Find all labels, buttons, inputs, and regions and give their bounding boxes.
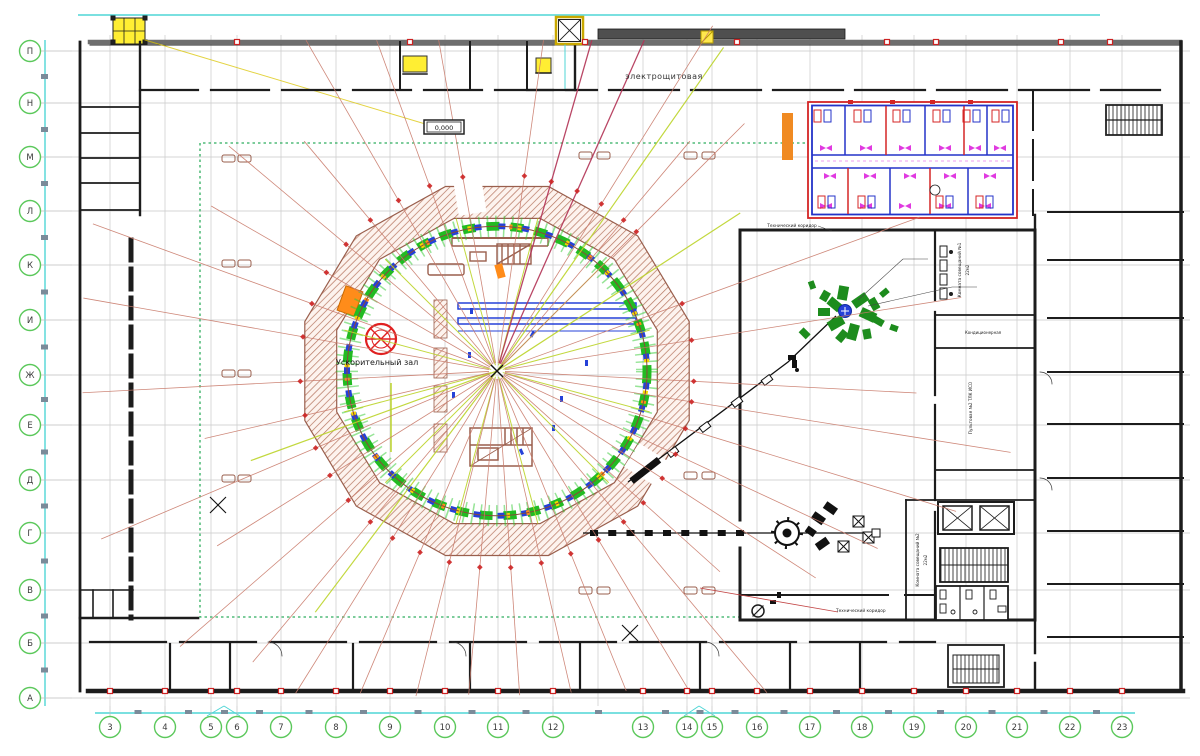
- microtron: [773, 519, 801, 547]
- row-axis-bubble-П: П: [20, 41, 73, 62]
- col-axis-bubble-21: 21: [1007, 706, 1028, 738]
- dim-tick: [833, 710, 840, 714]
- column-mark: [597, 152, 610, 159]
- dim-tick: [306, 710, 313, 714]
- right-wing: [1033, 90, 1183, 691]
- column-mark: [597, 587, 610, 594]
- floor-plan-canvas: ПНМЛКИЖЕДГВБА345678910111213141516171819…: [0, 0, 1200, 756]
- svg-text:21: 21: [1012, 723, 1023, 733]
- dim-tick: [185, 710, 192, 714]
- column-mark: [684, 472, 697, 479]
- dim-tick: [41, 235, 48, 240]
- column-mark: [222, 370, 235, 377]
- col-axis-bubble-7: 7: [271, 706, 292, 738]
- dim-tick: [697, 710, 704, 714]
- column-mark: [684, 587, 697, 594]
- svg-text:8: 8: [333, 723, 338, 733]
- dim-tick: [41, 397, 48, 402]
- svg-text:12: 12: [548, 723, 559, 733]
- dim-tick: [523, 710, 530, 714]
- col-axis-bubble-10: 10: [435, 706, 456, 738]
- dim-tick: [41, 450, 48, 455]
- svg-text:Л: Л: [27, 207, 33, 217]
- roof-platform: [111, 16, 432, 126]
- svg-text:Г: Г: [27, 529, 32, 539]
- dim-tick: [221, 710, 228, 714]
- col-axis-bubble-17: 17: [800, 706, 821, 738]
- col-axis-bubble-11: 11: [488, 706, 509, 738]
- dim-tick: [256, 710, 263, 714]
- col-axis-bubble-8: 8: [326, 706, 347, 738]
- row-axis-bubble-А: А: [20, 688, 73, 709]
- dim-tick: [1093, 710, 1100, 714]
- row-axis-bubble-Н: Н: [20, 93, 73, 114]
- dim-tick: [41, 127, 48, 132]
- toilet-block: [936, 586, 1008, 620]
- dim-tick: [135, 710, 142, 714]
- col-axis-bubble-23: 23: [1112, 706, 1133, 738]
- col-axis-bubble-12: 12: [543, 706, 564, 738]
- dim-tick: [41, 290, 48, 295]
- svg-text:М: М: [26, 153, 33, 163]
- dim-tick: [41, 668, 48, 673]
- elevation-marker: 0,000: [424, 120, 464, 134]
- dim-tick: [662, 710, 669, 714]
- dim-tick: [41, 559, 48, 564]
- electrical-room-label: электрощитовая: [625, 72, 703, 81]
- dim-tick: [41, 74, 48, 79]
- col-axis-bubble-13: 13: [633, 706, 654, 738]
- svg-text:13: 13: [638, 723, 649, 733]
- column-mark: [702, 472, 715, 479]
- column-mark: [238, 370, 251, 377]
- svg-text:Е: Е: [27, 421, 32, 431]
- dim-tick: [732, 710, 739, 714]
- column-mark: [684, 152, 697, 159]
- svg-text:23: 23: [1117, 723, 1128, 733]
- left-wing-rooms: [80, 42, 198, 618]
- column-mark: [238, 155, 251, 162]
- col-axis-bubble-16: 16: [747, 706, 768, 738]
- dim-tick: [41, 504, 48, 509]
- tech-corridor-label-top: Технический коридор: [766, 222, 817, 229]
- svg-text:22: 22: [1065, 723, 1076, 733]
- svg-text:И: И: [27, 316, 33, 326]
- meeting-room-1-label: Комната совещаний №1: [956, 242, 963, 297]
- col-axis-bubble-6: 6: [227, 706, 248, 738]
- meeting-room-2-label: Комната совещаний №2: [915, 533, 920, 587]
- svg-text:3: 3: [107, 723, 112, 733]
- dim-tick: [41, 345, 48, 350]
- svg-text:К: К: [27, 261, 33, 271]
- col-axis-bubble-9: 9: [380, 706, 401, 738]
- column-mark: [579, 152, 592, 159]
- col-axis-bubble-15: 15: [702, 706, 723, 738]
- svg-text:18: 18: [857, 723, 868, 733]
- col-axis-bubble-3: 3: [100, 706, 121, 738]
- svg-text:А: А: [27, 694, 33, 704]
- meeting-room-2-area: 22м2: [923, 554, 928, 565]
- row-axis-bubble-Б: Б: [20, 633, 73, 654]
- elevation-value: 0,000: [435, 124, 454, 132]
- svg-text:4: 4: [162, 723, 167, 733]
- meeting-room-1-area: 22м2: [965, 264, 970, 275]
- svg-text:В: В: [27, 586, 33, 596]
- conditioning-room-label: Кондиционерная: [965, 330, 1002, 335]
- dim-tick: [469, 710, 476, 714]
- svg-text:Н: Н: [27, 99, 33, 109]
- floor-plan-drawing: ПНМЛКИЖЕДГВБА345678910111213141516171819…: [0, 0, 1200, 756]
- dim-tick: [781, 710, 788, 714]
- row-axis-bubble-И: И: [20, 310, 73, 331]
- svg-text:16: 16: [752, 723, 763, 733]
- svg-text:10: 10: [440, 723, 451, 733]
- col-axis-bubble-14: 14: [677, 706, 698, 738]
- row-axis-bubble-Ж: Ж: [20, 365, 73, 386]
- accelerator-hall-label: Ускорительный зал: [336, 358, 418, 367]
- dim-tick: [989, 710, 996, 714]
- col-axis-bubble-18: 18: [852, 706, 873, 738]
- svg-text:19: 19: [909, 723, 920, 733]
- svg-text:П: П: [27, 47, 33, 57]
- column-mark: [222, 155, 235, 162]
- col-axis-bubble-20: 20: [956, 706, 977, 738]
- dim-tick: [41, 614, 48, 619]
- svg-text:20: 20: [961, 723, 972, 733]
- stairwell-bottom-right: [948, 645, 1004, 687]
- row-axis-bubble-Г: Г: [20, 523, 73, 544]
- col-axis-bubble-19: 19: [904, 706, 925, 738]
- highlight-bar: [782, 113, 793, 160]
- svg-text:Б: Б: [27, 639, 33, 649]
- elevator-block: [938, 502, 1014, 534]
- svg-text:Д: Д: [27, 476, 34, 486]
- svg-text:Ж: Ж: [25, 371, 34, 381]
- control-room-label: Пультовая №2 ТЛК ИСО: [968, 381, 973, 434]
- dim-tick: [1041, 710, 1048, 714]
- dim-tick: [937, 710, 944, 714]
- dim-tick: [885, 710, 892, 714]
- dim-tick: [360, 710, 367, 714]
- row-axis-bubble-В: В: [20, 580, 73, 601]
- svg-text:11: 11: [493, 723, 504, 733]
- row-axis-bubble-М: М: [20, 147, 73, 168]
- col-axis-bubble-4: 4: [155, 706, 176, 738]
- svg-text:5: 5: [208, 723, 213, 733]
- row-axis-bubble-Е: Е: [20, 415, 73, 436]
- meeting-room-furniture: [940, 246, 953, 299]
- dim-tick: [595, 710, 602, 714]
- svg-text:14: 14: [682, 723, 693, 733]
- svg-text:6: 6: [234, 723, 239, 733]
- svg-text:7: 7: [278, 723, 283, 733]
- row-axis-bubble-К: К: [20, 255, 73, 276]
- stairwell-top-right: [1106, 105, 1162, 135]
- col-axis-bubble-5: 5: [201, 706, 222, 738]
- svg-text:15: 15: [707, 723, 718, 733]
- column-mark: [238, 260, 251, 267]
- svg-text:17: 17: [805, 723, 816, 733]
- row-axis-bubble-Д: Д: [20, 470, 73, 491]
- dim-tick: [415, 710, 422, 714]
- column-mark: [222, 260, 235, 267]
- elevator-shaft-top: [556, 17, 583, 44]
- tech-corridor-label-bottom: Технический коридор: [835, 607, 886, 614]
- svg-text:9: 9: [387, 723, 392, 733]
- row-axis-bubble-Л: Л: [20, 201, 73, 222]
- dim-tick: [41, 181, 48, 186]
- stairwell-mid-right: [940, 548, 1008, 582]
- office-cluster: [782, 100, 1017, 218]
- column-mark: [222, 475, 235, 482]
- col-axis-bubble-22: 22: [1060, 706, 1081, 738]
